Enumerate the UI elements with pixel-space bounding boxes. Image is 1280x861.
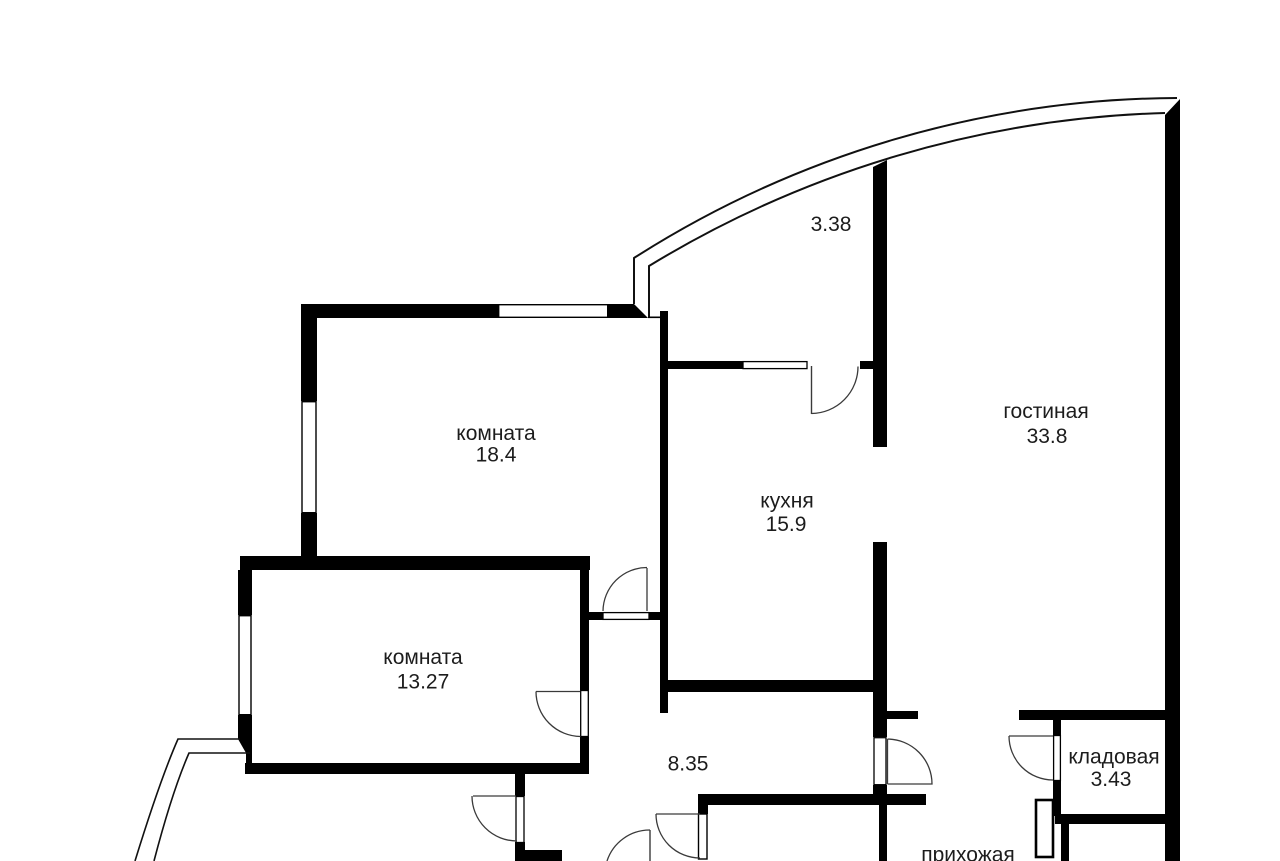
- svg-text:8.35: 8.35: [668, 753, 709, 776]
- svg-text:3.43: 3.43: [1091, 768, 1132, 791]
- svg-text:кухня: кухня: [760, 490, 813, 513]
- svg-text:13.27: 13.27: [397, 671, 450, 694]
- svg-text:комната: комната: [383, 646, 463, 669]
- svg-text:33.8: 33.8: [1027, 425, 1068, 448]
- svg-text:18.4: 18.4: [476, 444, 517, 467]
- svg-text:прихожая: прихожая: [921, 844, 1015, 861]
- svg-text:кладовая: кладовая: [1068, 746, 1159, 769]
- svg-text:3.38: 3.38: [811, 213, 852, 236]
- svg-text:гостиная: гостиная: [1003, 400, 1088, 423]
- svg-text:15.9: 15.9: [766, 513, 807, 536]
- svg-text:комната: комната: [456, 422, 536, 445]
